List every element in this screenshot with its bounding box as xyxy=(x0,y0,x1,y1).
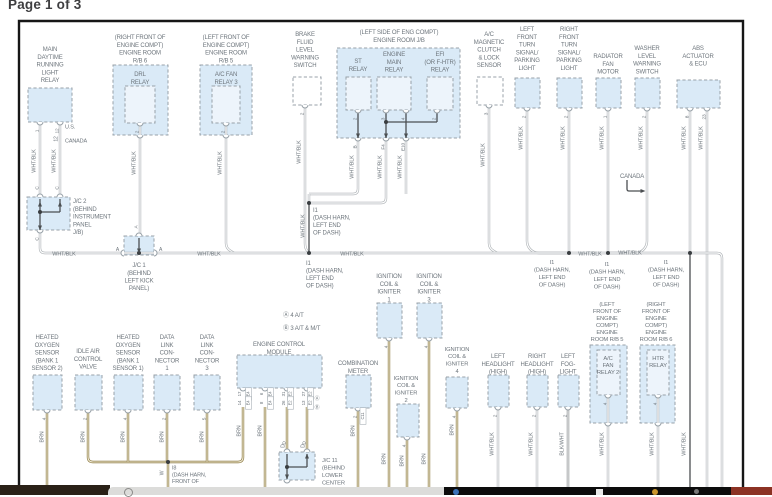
brake-fluid-switch-box xyxy=(293,77,321,105)
i1-junction-label-4: LEFT END xyxy=(594,277,621,283)
diagram-label: (BEHIND xyxy=(127,271,151,277)
iac-label: IDLE AIR xyxy=(76,349,100,355)
pin-label: A xyxy=(133,225,139,229)
efi-relay-label: EFI xyxy=(436,52,445,58)
pin-label: 12 xyxy=(54,128,60,134)
data-link-connector3-box xyxy=(194,375,220,410)
drl-relay-label: DRL xyxy=(134,72,146,78)
pin-arc xyxy=(223,135,229,138)
wire-color-label: WHT/BLK xyxy=(300,214,306,238)
main-drl-relay-label: RUNNING xyxy=(37,63,64,69)
engine-room-jb-label: (LEFT SIDE OF ENG COMPT) xyxy=(360,30,439,36)
wire-color-label: E4 xyxy=(246,400,251,406)
coil1-label: COIL & xyxy=(380,282,399,288)
efi-relay-label: RELAY xyxy=(431,68,450,74)
wire-color-label: WHT/BLK xyxy=(51,149,57,173)
taskbar xyxy=(444,487,772,495)
dlc3-label: DATA xyxy=(200,335,215,341)
wire-color-label: WHT/BLK xyxy=(681,432,687,456)
lf-turn-label: LIGHT xyxy=(519,66,536,72)
pin-arc xyxy=(704,108,710,111)
radiator-fan-label: RADIATOR xyxy=(593,54,623,60)
pin-arc xyxy=(655,423,661,426)
pin-arc xyxy=(355,110,361,113)
ac-clutch-label: A/C xyxy=(484,32,494,38)
i1-junction-label-1: (DASH HARN, xyxy=(313,216,351,222)
wire-color-label: D xyxy=(300,444,306,448)
rb6-bottom-label: FRONT OF xyxy=(642,309,671,315)
rb5-bottom-label: ENGINE xyxy=(596,330,618,336)
diagram-label: WHT/BLK xyxy=(578,252,602,258)
rheadlight-label: HEADLIGHT xyxy=(521,362,554,368)
ignition-coil3-box xyxy=(417,303,442,338)
meter-label: COMBINATION xyxy=(338,361,378,367)
wire-color-label: 17 xyxy=(237,391,242,396)
ecm-label: ENGINE CONTROL xyxy=(253,342,306,348)
taskbar-icon-gray[interactable] xyxy=(694,489,699,494)
i1-junction-label-3: I1 xyxy=(550,260,555,266)
rb6-label: ENGINE ROOM xyxy=(119,51,161,57)
wire-color-label: WHT/BLK xyxy=(397,155,403,179)
jc1-label: J/C 1 xyxy=(132,263,146,269)
lf-turn-label: PARKING xyxy=(514,58,540,64)
pin-arc xyxy=(57,122,63,125)
i8-junction-label: I8 xyxy=(172,466,176,472)
wire-color-label: BRN xyxy=(236,425,242,436)
i1-junction-label-2: I1 xyxy=(306,261,312,267)
wire-color-label: E4 xyxy=(268,400,273,406)
junction-dot xyxy=(384,120,388,124)
dlc3-label: NECTOR xyxy=(195,358,220,364)
ho2s1-label: SENSOR xyxy=(116,351,141,357)
wire-color-label: WHT/BLK xyxy=(599,432,605,456)
wire-color-label: WHT/BLK xyxy=(518,126,524,150)
washer-level-switch-box xyxy=(635,78,660,108)
ho2s1-label: (BANK 1 xyxy=(117,358,140,364)
wire-color-label: 12 xyxy=(53,136,59,142)
i1-junction-label-5: LEFT END xyxy=(653,275,680,281)
dlc1-label: DATA xyxy=(160,335,175,341)
i1-junction-label-4: (DASH HARN, xyxy=(589,269,626,275)
diagram-label: WHT/BLK xyxy=(340,252,364,258)
rb5-label: ENGINE COMPT) xyxy=(203,43,250,49)
wire-blk-50 xyxy=(627,180,642,191)
wire-color-label: BRN xyxy=(120,431,126,442)
pin-label: B xyxy=(352,145,358,148)
lf-turn-label: FRONT xyxy=(517,35,537,41)
pin-arc xyxy=(44,410,50,413)
wire-color-label: D xyxy=(280,444,286,448)
brake-fluid-label: BRAKE xyxy=(295,32,315,38)
i1-junction-label-4: I1 xyxy=(605,262,610,268)
rb6-bottom-label: ENGINE xyxy=(645,330,667,336)
wire-color-label: WHT/BLK xyxy=(296,140,302,164)
pin-arc xyxy=(426,338,432,341)
pin-arc xyxy=(383,110,389,113)
coil2-label: IGNITION xyxy=(394,376,419,382)
diagram-label: Ⓐ xyxy=(315,395,320,402)
wire-color-label: WHT/BLK xyxy=(480,143,486,167)
lheadlight-label: (HIGH) xyxy=(489,370,507,376)
pin-arc xyxy=(605,108,611,111)
pin-arc xyxy=(644,108,650,111)
washer-label: SWITCH xyxy=(636,69,659,75)
jc2-label: (BEHIND xyxy=(73,207,97,213)
diagram-label: PANEL) xyxy=(129,286,149,292)
wire-wht-3 xyxy=(226,125,234,253)
ecm-label: MODULE xyxy=(267,350,292,356)
wire-color-label: 8 xyxy=(259,401,264,404)
pin-arc xyxy=(655,395,661,398)
diagram-label: U.S. xyxy=(65,125,76,131)
dlc1-label: 1 xyxy=(165,366,169,372)
ho2s1-label: HEATED xyxy=(117,335,141,341)
ac-clutch-label: CLUTCH xyxy=(477,48,500,54)
wire-color-label: 6 xyxy=(259,392,264,395)
junction-dot xyxy=(166,460,170,464)
wire-color-label: BRN xyxy=(39,431,45,442)
main-drl-relay-label: RELAY xyxy=(41,78,60,84)
rb5-bottom-label: FRONT OF xyxy=(593,309,622,315)
wire-color-label: BRN xyxy=(399,455,405,466)
ho2s2-label: SENSOR 2) xyxy=(32,366,63,372)
taskbar-icon-white[interactable] xyxy=(596,489,603,495)
main-daytime-running-light-relay-box xyxy=(28,88,72,122)
coil4-label: IGNITION xyxy=(445,347,470,353)
wire-color-label: WHT/BLK xyxy=(560,126,566,150)
pin-arc xyxy=(534,407,540,410)
ac-fan-relay3-label: A/C FAN xyxy=(215,72,237,78)
rf-turn-label: FRONT xyxy=(559,35,579,41)
pin-label: 23 xyxy=(701,114,707,120)
rb5-bottom-label: (LEFT xyxy=(599,302,615,308)
left-headlight-box xyxy=(488,375,509,407)
rb6-bottom-label: ROOM R/B 6 xyxy=(640,337,673,343)
pin-arc xyxy=(605,423,611,426)
pin-arc xyxy=(495,407,501,410)
i1-junction-label-2: OF DASH) xyxy=(306,284,334,290)
wire-color-label: BRN xyxy=(199,431,205,442)
brake-fluid-label: LEVEL xyxy=(296,48,315,54)
wire-color-label: BRN xyxy=(257,425,263,436)
ac-fan-relay2-label: FAN xyxy=(603,363,614,369)
pin-arc xyxy=(565,407,571,410)
canada-label: CANADA xyxy=(620,174,644,180)
engine-main-relay-box xyxy=(377,77,411,110)
rb5-bottom-label: ROOM R/B 5 xyxy=(591,337,624,343)
main-drl-relay-label: DAYTIME xyxy=(37,55,62,61)
wire-color-label: WHT/BLK xyxy=(377,155,383,179)
pin-arc xyxy=(403,110,409,113)
wire-color-label: BRN xyxy=(449,424,455,435)
taskbar-left-segment xyxy=(0,485,110,495)
rb5-label: ENGINE ROOM xyxy=(205,51,247,57)
pin-arc xyxy=(223,123,229,126)
jc2-label: J/C 2 xyxy=(73,199,87,205)
rb6-label: (RIGHT FRONT OF xyxy=(115,35,166,41)
i1-junction-label-5: (DASH HARN, xyxy=(648,267,685,273)
wire-color-label: WHT/BLK xyxy=(649,432,655,456)
wire-core-23 xyxy=(88,407,243,462)
wire-color-label: WHT/BLK xyxy=(599,126,605,150)
pin-arc xyxy=(136,233,142,236)
coil2-label: COIL & xyxy=(397,383,415,389)
rb5-bottom-label: COMPT) xyxy=(596,323,618,329)
ho2s2-label: HEATED xyxy=(36,335,60,341)
jc2-label: INSTRUMENT xyxy=(73,215,111,221)
rb5-label: (LEFT FRONT OF xyxy=(203,35,250,41)
jc11-label: LOWER xyxy=(322,473,343,479)
wire-color-label: E2 xyxy=(288,391,293,397)
i8-junction-label: FRONT OF xyxy=(172,479,200,485)
i1-junction-label-5: I1 xyxy=(664,260,669,266)
jc11-label: (BEHIND xyxy=(322,465,345,471)
washer-label: WASHER xyxy=(634,46,660,52)
radiator-fan-label: FAN xyxy=(602,62,613,68)
jc2-box xyxy=(27,197,70,230)
pin-arc xyxy=(125,410,131,413)
pin-arc xyxy=(404,437,410,440)
jc2-label: PANEL xyxy=(73,222,92,228)
engine-main-relay-label: RELAY xyxy=(385,68,404,74)
junction-dot xyxy=(688,251,692,255)
wire-color-label: WHT/BLK xyxy=(217,151,223,175)
pin-arc xyxy=(304,449,310,452)
right-headlight-box xyxy=(527,375,548,407)
ac-clutch-label: & LOCK xyxy=(478,55,499,61)
pin-arc xyxy=(121,250,124,256)
i1-junction-label-3: (DASH HARN, xyxy=(534,267,571,273)
junction-dot xyxy=(38,210,42,214)
wire-color-label: WHT/BLK xyxy=(349,155,355,179)
dlc3-label: LINK xyxy=(201,343,214,349)
wire-wht-9 xyxy=(489,107,497,253)
pin-arc xyxy=(302,105,308,108)
wire-color-label: BRN xyxy=(159,431,165,442)
wire-color-label: E4 xyxy=(268,391,273,397)
wire-color-label: WHT/BLK xyxy=(638,126,644,150)
ac-fan-relay2-label: A/C xyxy=(603,356,612,362)
htr-relay-label: RELAY xyxy=(649,363,667,369)
heated-o2-sensor1-box xyxy=(114,375,143,410)
i1-junction-label-1: LEFT END xyxy=(313,223,342,229)
iac-label: CONTROL xyxy=(74,357,103,363)
idle-air-control-valve-box xyxy=(75,375,102,410)
engine-main-relay-label: ENGINE xyxy=(383,52,405,58)
washer-label: WARNING xyxy=(633,62,661,68)
dlc1-label: LINK xyxy=(161,343,174,349)
legend-b: Ⓑ 3 A/T & M/T xyxy=(283,324,321,332)
junction-dot xyxy=(307,201,311,205)
pin-arc xyxy=(284,449,290,452)
pin-arc xyxy=(164,410,170,413)
main-drl-relay-label: LIGHT xyxy=(42,70,59,76)
radiator-fan-motor-box xyxy=(596,78,621,108)
iac-label: VALVE xyxy=(79,365,97,371)
drl-relay-box xyxy=(125,86,155,123)
wire-color-label: WHT/BLK xyxy=(681,126,687,150)
data-link-connector1-box xyxy=(154,375,180,410)
ac-magnetic-clutch-box xyxy=(477,77,503,105)
wire-color-label: BLK/WHT xyxy=(559,432,565,456)
rb6-bottom-label: COMPT) xyxy=(645,323,667,329)
taskbar-icon-gold[interactable] xyxy=(652,489,658,495)
combination-meter-box xyxy=(346,375,371,408)
wire-color-label: W xyxy=(159,470,165,475)
pin-arc xyxy=(137,123,143,126)
pin-arc xyxy=(204,410,210,413)
coil2-label: 2 xyxy=(404,398,407,404)
i1-junction-label-2: LEFT END xyxy=(306,276,335,282)
jc11-box xyxy=(279,452,315,480)
ac-clutch-label: SENSOR xyxy=(477,63,502,69)
ho2s1-label: SENSOR 1) xyxy=(113,366,144,372)
wire-color-label: E2 xyxy=(308,391,313,397)
heated-o2-sensor2-box xyxy=(33,375,62,410)
coil1-label: IGNITER xyxy=(377,290,401,296)
pin-arc xyxy=(262,388,268,391)
st-relay-box xyxy=(346,77,371,110)
pin-arc xyxy=(37,122,43,125)
pin-arc xyxy=(37,194,43,197)
brake-fluid-label: FLUID xyxy=(297,40,314,46)
wire-arrowhead xyxy=(641,189,646,193)
engine-control-module-box xyxy=(237,355,322,388)
st-relay-label: RELAY xyxy=(349,67,368,73)
drl-relay-label: RELAY xyxy=(131,80,150,86)
wire-color-label: 31 xyxy=(281,391,286,396)
wiring-diagram: 1122222342BF4E1032212823CCCAAA42425DD244… xyxy=(0,0,772,495)
lf-turn-label: SIGNAL/ xyxy=(516,50,539,56)
coil1-label: IGNITION xyxy=(376,274,401,280)
ac-fan-relay2-label: RELAY 2 xyxy=(597,370,619,376)
rb6-bottom-label: ENGINE xyxy=(645,316,667,322)
pin-arc xyxy=(284,480,290,483)
pin-label: E10 xyxy=(400,142,406,151)
coil3-label: IGNITION xyxy=(416,274,441,280)
lheadlight-label: HEADLIGHT xyxy=(482,362,515,368)
abs-label: & ECU xyxy=(689,62,707,68)
rf-turn-label: RIGHT xyxy=(560,27,578,33)
diagram-label: CANADA xyxy=(65,139,88,145)
lf-turn-label: TURN xyxy=(519,43,535,49)
wire-color-label: BRN xyxy=(80,431,86,442)
wire-color-label: WHT/BLK xyxy=(131,151,137,175)
washer-label: LEVEL xyxy=(638,54,657,60)
brake-fluid-label: WARNING xyxy=(291,55,319,61)
pin-arc xyxy=(154,250,157,256)
lfog-label: FOG- xyxy=(561,362,576,368)
wire-color-label: WHT/BLK xyxy=(698,126,704,150)
pin-arc xyxy=(687,108,693,111)
engine-room-jb-label: ENGINE ROOM J/B xyxy=(373,38,425,44)
legend-a: Ⓐ 4 A/T xyxy=(283,311,304,319)
wire-color-label: C11 xyxy=(360,412,365,420)
lfog-label: LIGHT xyxy=(560,370,577,376)
i1-junction-label-1: OF DASH) xyxy=(313,231,341,237)
dlc1-label: NECTOR xyxy=(155,358,180,364)
ignition-coil1-box xyxy=(377,303,402,338)
wire-color-label: E4 xyxy=(246,391,251,397)
abs-actuator-box xyxy=(677,80,720,108)
i1-junction-label-4: OF DASH) xyxy=(594,284,621,290)
coil3-label: IGNITER xyxy=(417,290,441,296)
pin-arc xyxy=(486,105,492,108)
diagram-label: Ⓑ xyxy=(315,404,320,411)
ac-clutch-label: MAGNETIC xyxy=(474,40,505,46)
main-drl-relay-label: MAIN xyxy=(43,47,57,53)
ac-fan-relay3-label: RELAY 3 xyxy=(214,80,238,86)
ho2s2-label: (BANK 1 xyxy=(36,358,59,364)
lheadlight-label: LEFT xyxy=(491,354,506,360)
rf-turn-label: LIGHT xyxy=(561,66,578,72)
i1-junction-label-3: OF DASH) xyxy=(539,282,566,288)
rheadlight-label: (HIGH) xyxy=(528,370,546,376)
pin-arc xyxy=(524,108,530,111)
taskbar-icon-red[interactable] xyxy=(731,487,772,495)
pin-arc xyxy=(57,194,63,197)
dlc1-label: CON- xyxy=(160,351,175,357)
efi-relay-label: (OR F-HTR) xyxy=(424,60,455,66)
pin-arc xyxy=(454,408,460,411)
coil2-label: IGNITER xyxy=(395,391,417,397)
wire-color-label: 27 xyxy=(301,391,306,396)
pin-arc xyxy=(566,108,572,111)
lfog-label: LEFT xyxy=(561,354,576,360)
junction-dot xyxy=(567,251,571,255)
i8-junction-label: (DASH HARN, xyxy=(172,472,207,478)
htr-relay-label: HTR xyxy=(652,356,663,362)
pin-arc xyxy=(605,395,611,398)
coil4-label: IGNITER xyxy=(446,362,468,368)
radiator-fan-label: MOTOR xyxy=(597,70,619,76)
wire-color-label: WHT/BLK xyxy=(528,432,534,456)
rb6-label: ENGINE COMPT) xyxy=(117,43,164,49)
ignition-coil2-box xyxy=(397,404,419,437)
taskbar-icon-blue[interactable] xyxy=(453,489,459,495)
jc11-label: J/C 11 xyxy=(322,458,337,464)
left-front-turn-light-box xyxy=(515,78,540,108)
ho2s2-label: SENSOR xyxy=(35,351,60,357)
wire-color-label: 14 xyxy=(237,400,242,405)
wire-color-label: BRN xyxy=(350,425,356,436)
rf-turn-label: PARKING xyxy=(556,58,582,64)
i1-junction-label-5: OF DASH) xyxy=(653,282,680,288)
window-edge-strip xyxy=(108,487,448,495)
pin-arc xyxy=(434,110,440,113)
wire-color-label: BRN xyxy=(421,453,427,464)
wire-color-label: E2 xyxy=(308,400,313,406)
brake-fluid-label: SWITCH xyxy=(294,63,317,69)
left-foglight-box xyxy=(558,375,579,407)
i1-junction-label-1: I1 xyxy=(313,208,319,214)
dlc3-label: CON- xyxy=(200,351,215,357)
pin-arc xyxy=(85,410,91,413)
wire-color-label: 13 xyxy=(301,400,306,405)
wire-color-label: WHT/BLK xyxy=(489,432,495,456)
junction-dot xyxy=(285,465,289,469)
ignition-coil4-box xyxy=(446,377,468,408)
diagram-label: LEFT KICK xyxy=(125,279,154,285)
abs-label: ACTUATOR xyxy=(682,54,714,60)
ho2s1-label: OXYGEN xyxy=(116,343,141,349)
coil4-label: 4 xyxy=(455,369,459,375)
rb6-bottom-label: (RIGHT xyxy=(646,302,666,308)
coil3-label: COIL & xyxy=(420,282,439,288)
wire-color-label: 26 xyxy=(281,400,286,405)
engine-main-relay-label: MAIN xyxy=(387,60,401,66)
meter-label: METER xyxy=(348,369,369,375)
